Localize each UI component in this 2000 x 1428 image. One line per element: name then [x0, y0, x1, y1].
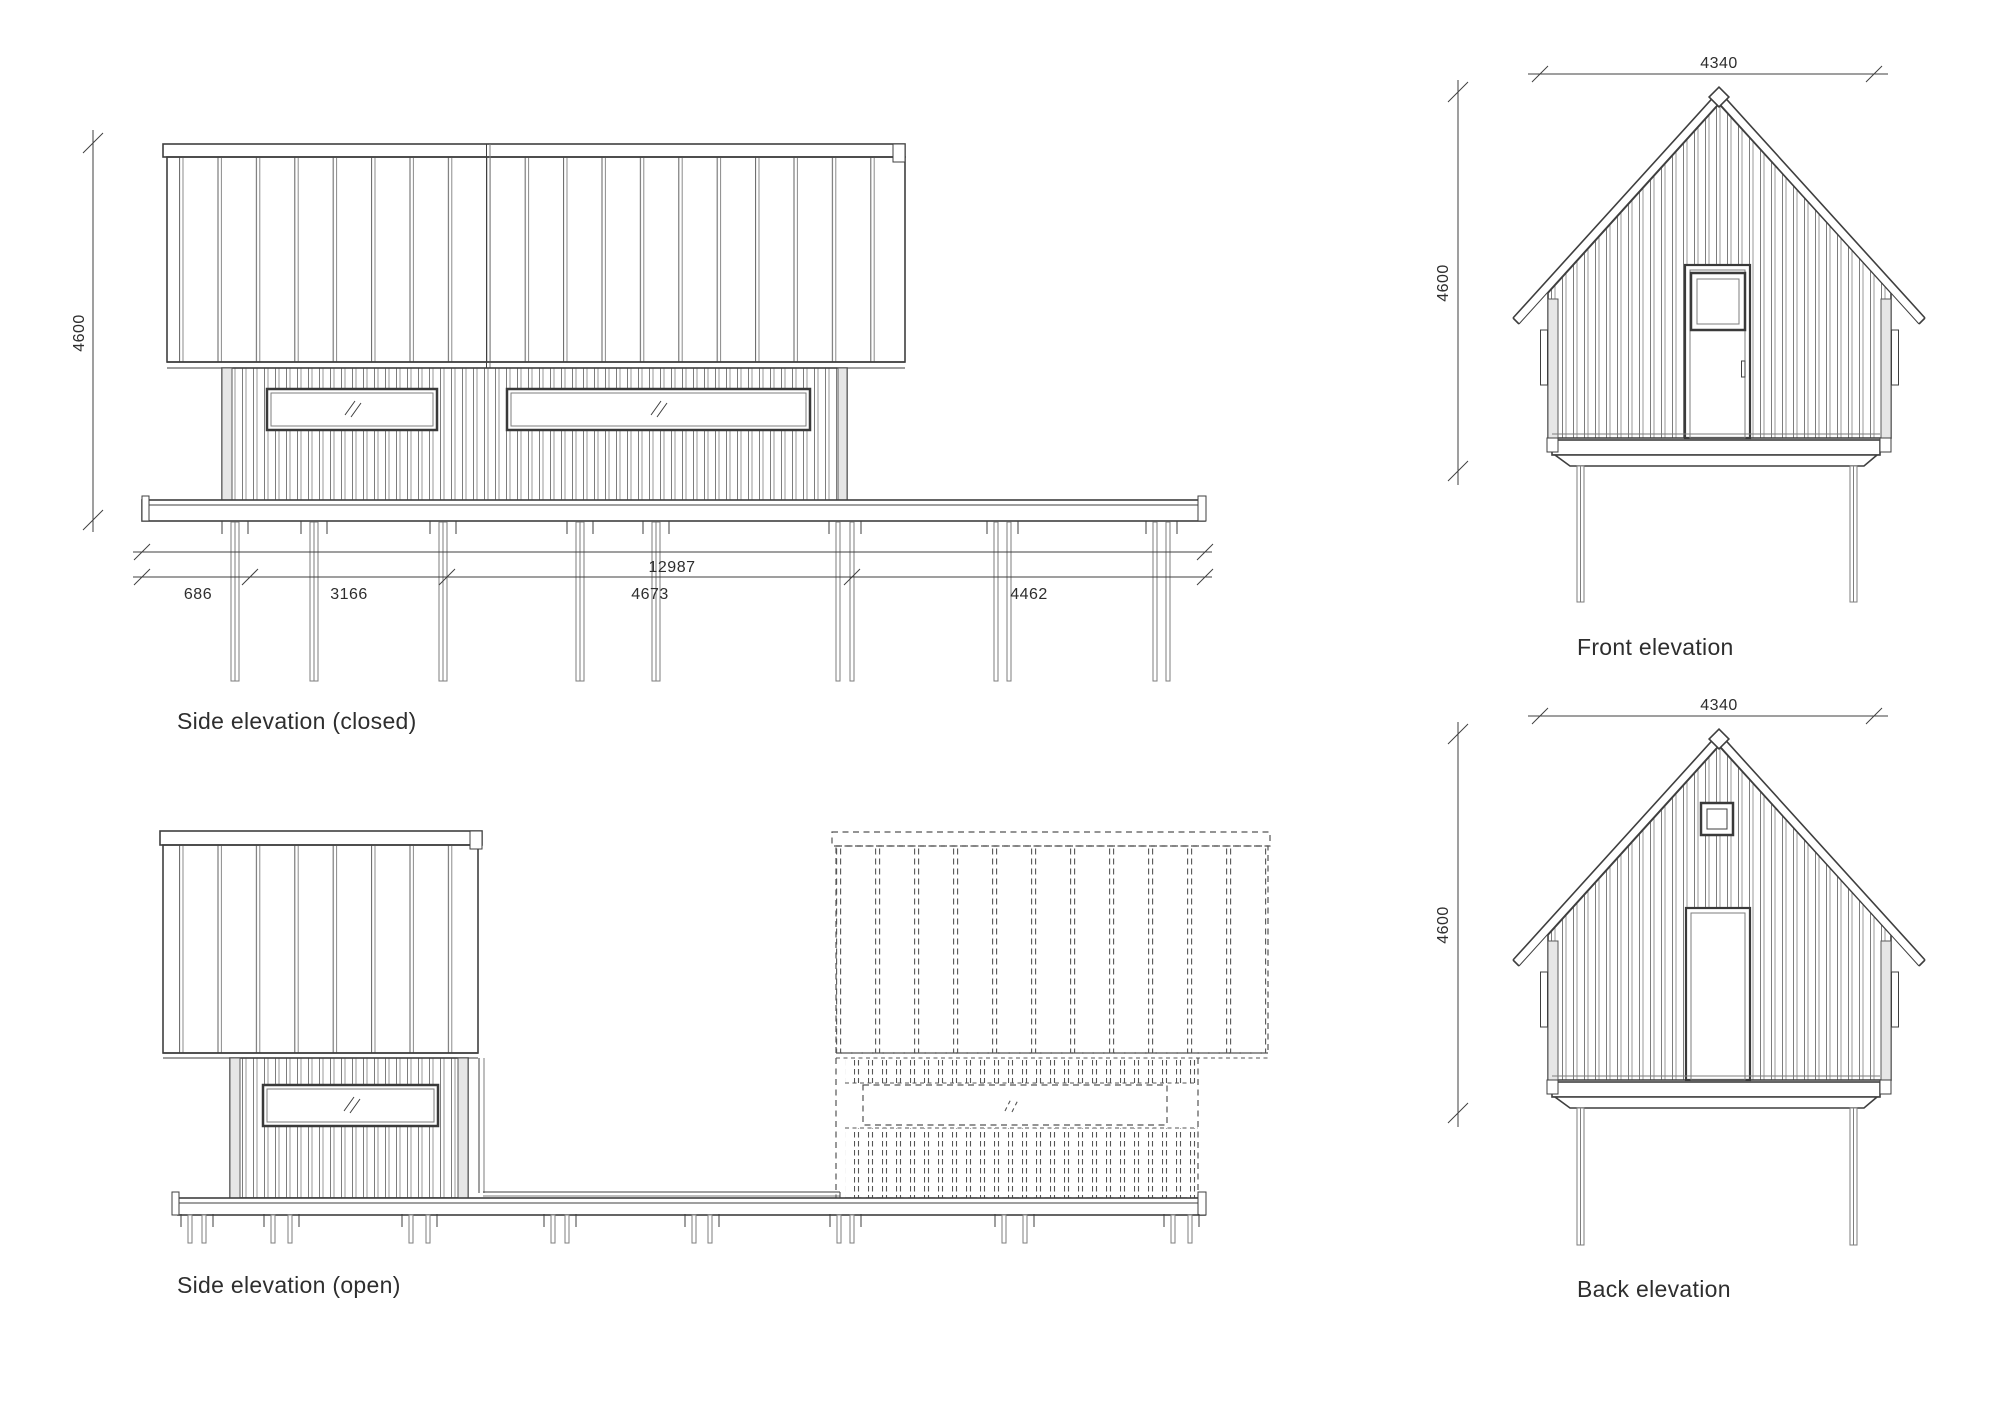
- closed-deck: [142, 496, 1206, 521]
- deck-bevel: [1555, 455, 1877, 466]
- side-open-title: Side elevation (open): [177, 1272, 401, 1298]
- post-pair: [544, 1214, 576, 1243]
- deck-bevel: [1555, 1097, 1877, 1108]
- corner-board-left: [222, 368, 232, 502]
- post: [430, 521, 456, 681]
- post-pair: [1146, 521, 1177, 681]
- post: [1577, 466, 1584, 602]
- back-gable-window: [1701, 803, 1733, 835]
- post-pair: [264, 1214, 299, 1243]
- side-tab-right: [1892, 972, 1899, 1027]
- post-pair: [685, 1214, 719, 1243]
- door-handle: [1742, 361, 1746, 377]
- front-posts: [1577, 466, 1857, 602]
- side-closed-title: Side elevation (closed): [177, 708, 417, 734]
- dim-4340-back: 4340: [1528, 697, 1888, 724]
- door-window: [1691, 273, 1745, 330]
- side-tab-left: [1541, 972, 1548, 1027]
- closed-upper-panel: [163, 144, 905, 368]
- back-title: Back elevation: [1577, 1276, 1731, 1302]
- back-door: [1686, 908, 1750, 1080]
- side-tab-left: [1541, 330, 1548, 385]
- post-pair: [181, 1214, 213, 1243]
- dim-width-label: 4340: [1700, 697, 1738, 714]
- fascia-end-trim: [470, 831, 482, 849]
- post-pair: [829, 521, 861, 681]
- post: [1577, 1108, 1584, 1245]
- dim-4600-closed: 4600: [71, 130, 103, 532]
- dim-seg-3: 4673: [631, 586, 669, 603]
- front-title: Front elevation: [1577, 634, 1734, 660]
- dim-4340-front: 4340: [1528, 55, 1888, 82]
- corner-board-right: [458, 1058, 468, 1198]
- dim-chain-closed: 12987 686 3166 4673 4462: [133, 544, 1213, 603]
- post-pair: [830, 1214, 861, 1243]
- dim-seg-4: 4462: [1010, 586, 1048, 603]
- closed-lower-wall: [222, 368, 847, 502]
- front-door: [1685, 265, 1750, 438]
- drawing-sheet: 4600: [0, 0, 2000, 1428]
- dim-height-label: 4600: [71, 314, 88, 352]
- corner-stub-left: [1547, 1080, 1558, 1094]
- open-posts: [181, 1214, 1199, 1243]
- corner-stub-right: [1880, 438, 1891, 452]
- corner-board-right: [838, 368, 847, 502]
- deck-end-left: [172, 1192, 179, 1215]
- post: [222, 521, 248, 681]
- deck-end-right: [1198, 1192, 1206, 1215]
- back-posts: [1577, 1108, 1857, 1245]
- glazing-symbol: [1005, 1099, 1018, 1112]
- post-pair: [402, 1214, 437, 1243]
- side-tab-right: [1892, 330, 1899, 385]
- corner-board-left: [230, 1058, 240, 1198]
- post-pair: [995, 1214, 1034, 1243]
- corner-stub-left: [1547, 438, 1558, 452]
- post: [567, 521, 593, 681]
- corner-board-right: [1881, 941, 1891, 1094]
- post: [301, 521, 327, 681]
- side-elevation-closed: 4600: [71, 130, 1213, 734]
- window-open: [263, 1085, 438, 1126]
- back-elevation: 4340 4600: [1435, 697, 1925, 1302]
- dim-seg-1: 686: [184, 586, 212, 603]
- ghost-window: [863, 1085, 1167, 1125]
- deck-end-right: [1198, 496, 1206, 521]
- side-elevation-open: Side elevation (open): [160, 831, 1270, 1298]
- deck-end-left: [142, 496, 149, 521]
- dim-4600-back: 4600: [1435, 722, 1468, 1127]
- open-lower-wall: [230, 1058, 468, 1198]
- corner-board-left: [1548, 299, 1558, 452]
- corner-stub-right: [1880, 1080, 1891, 1094]
- dim-seg-2: 3166: [330, 586, 368, 603]
- dim-height-label: 4600: [1435, 906, 1452, 944]
- corner-board-left: [1548, 941, 1558, 1094]
- fascia-end-trim: [893, 144, 905, 162]
- front-elevation: 4340 4600: [1435, 55, 1925, 660]
- dim-width-label: 4340: [1700, 55, 1738, 72]
- corner-board-right: [1881, 299, 1891, 452]
- window-closed-left: [267, 389, 437, 430]
- elevations-canvas: 4600: [0, 0, 2000, 1428]
- dim-4600-front: 4600: [1435, 80, 1468, 485]
- dim-height-label: 4600: [1435, 264, 1452, 302]
- open-ghost-panel: [832, 832, 1270, 1198]
- post: [1850, 466, 1857, 602]
- post-pair: [1164, 1214, 1199, 1243]
- dim-total-label: 12987: [649, 559, 696, 576]
- post: [1850, 1108, 1857, 1245]
- window-closed-right: [507, 389, 810, 430]
- ghost-fascia: [832, 832, 1270, 846]
